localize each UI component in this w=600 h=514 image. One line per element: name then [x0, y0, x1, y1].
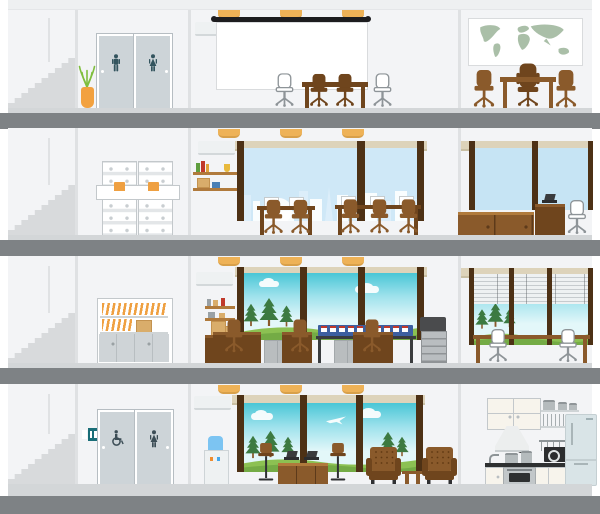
mens-restroom-door: [97, 34, 135, 112]
sign-figure: [90, 431, 92, 438]
restroom-sign-panel: [82, 430, 87, 439]
plant-pot: [81, 87, 94, 108]
tufted-armchair: [366, 447, 401, 485]
office-chair: [564, 200, 590, 235]
bar-stool: [328, 441, 348, 485]
cloud: [259, 281, 279, 287]
pine-tree: [487, 302, 504, 328]
window-frame-post: [300, 395, 307, 472]
fridge-split-line: [566, 459, 596, 461]
ceiling-light: [280, 385, 302, 394]
plant-leaves: [78, 64, 96, 89]
book: [212, 182, 220, 188]
ceiling-light: [218, 385, 240, 394]
stair-corner-wall: [48, 18, 50, 62]
woman-icon: [147, 54, 159, 72]
water-cooler: [204, 450, 229, 486]
office-chair: [261, 199, 286, 235]
orange-folder: [148, 182, 159, 191]
air-conditioner: [196, 272, 233, 286]
box: [213, 300, 218, 306]
window-frame-post: [237, 395, 244, 472]
refrigerator: [565, 414, 597, 486]
cloud: [251, 413, 273, 420]
box: [197, 178, 210, 188]
floor-slab: [0, 113, 600, 129]
copier-printer: [421, 331, 447, 363]
world-map: [473, 22, 578, 62]
stair-corner-wall: [48, 394, 50, 434]
copier-top: [420, 317, 446, 331]
bar-stool: [256, 441, 276, 485]
staircase: [8, 185, 75, 235]
office-building-cutaway: [0, 0, 600, 514]
office-chair: [338, 198, 363, 235]
tufted-armchair: [422, 447, 457, 485]
office-chair: [288, 318, 312, 354]
venetian-blinds: [469, 274, 593, 304]
desk: [535, 204, 565, 238]
cabinet-doors: [99, 334, 169, 362]
shelf-line: [100, 316, 168, 318]
wall-shelf: [193, 188, 241, 191]
jar: [207, 299, 211, 306]
window-frame-post: [469, 268, 474, 345]
wall-divider: [458, 384, 461, 484]
wall-divider: [188, 256, 191, 363]
book: [201, 161, 205, 172]
folder-row: [102, 303, 166, 315]
floor-2: [8, 128, 592, 256]
guest-chair: [272, 73, 297, 108]
guest-chair: [470, 70, 498, 108]
ceiling-light: [218, 257, 240, 266]
wall-divider: [75, 10, 78, 108]
side-table: [402, 471, 423, 474]
wall-divider: [188, 384, 191, 484]
window-frame-post: [356, 395, 363, 472]
laptop: [284, 457, 299, 460]
roof: [8, 0, 592, 10]
upper-cabinets: [487, 398, 541, 430]
jar: [208, 312, 215, 318]
window-frame-post: [588, 268, 593, 345]
office-chair: [288, 199, 313, 235]
white-chair: [485, 329, 511, 363]
office-chair: [367, 198, 392, 235]
ceiling-light: [342, 385, 364, 394]
floor-slab: [0, 240, 600, 256]
office-chair: [222, 318, 246, 354]
office-chair: [396, 198, 421, 235]
storage-cabinet: [97, 298, 173, 365]
wheelchair-icon: [110, 430, 124, 446]
accessible-restroom-door: [98, 410, 136, 488]
wall-divider: [458, 10, 461, 108]
floor-surface: [8, 484, 592, 496]
staircase: [8, 58, 75, 108]
open-drawer: [96, 185, 180, 200]
guest-chair: [552, 70, 580, 108]
book: [221, 298, 225, 306]
airplane: [325, 415, 347, 425]
wall-divider: [188, 10, 191, 108]
wall-divider: [188, 128, 191, 235]
office-chair: [360, 318, 384, 354]
wall-divider: [75, 384, 78, 484]
world-map-board: [468, 18, 583, 66]
hot-tap: [210, 457, 213, 461]
task-chair: [307, 73, 331, 108]
window-frame-post: [237, 141, 244, 221]
guest-chair: [370, 73, 395, 108]
womens-restroom-door: [134, 34, 172, 112]
trophy: [224, 164, 230, 172]
window-frame-post: [469, 141, 475, 210]
wall-divider: [75, 256, 78, 363]
table-leg: [410, 338, 413, 363]
book: [206, 164, 209, 172]
cold-tap: [217, 457, 220, 461]
wall-shelf: [205, 306, 235, 309]
womens-restroom-door: [135, 410, 173, 488]
sign-figure: [94, 431, 97, 438]
shelf-board: [541, 410, 579, 412]
folder-row: [102, 319, 132, 331]
fridge-handle: [571, 423, 573, 445]
laptop: [542, 200, 557, 203]
window-frame-post: [532, 141, 538, 210]
ceiling-light: [280, 257, 302, 266]
book: [196, 163, 200, 172]
executive-chair: [514, 62, 542, 108]
ceiling-light: [280, 129, 302, 138]
floor-slab: [0, 368, 600, 384]
task-chair: [333, 73, 357, 108]
wall-divider: [75, 128, 78, 235]
woman-icon: [148, 430, 160, 448]
oven-handle: [507, 469, 532, 471]
ceiling-light: [342, 129, 364, 138]
stair-corner-wall: [48, 266, 50, 313]
floor-4: [8, 384, 592, 514]
stair-corner-wall: [48, 138, 50, 185]
staircase: [8, 434, 75, 484]
floor-slab: [0, 496, 600, 514]
air-conditioner: [198, 141, 235, 155]
floor-1: [8, 10, 592, 129]
oven-window: [509, 473, 530, 482]
executive-desk: [500, 77, 556, 82]
man-icon: [110, 54, 122, 72]
window-frame-post: [547, 268, 552, 345]
air-conditioner: [194, 396, 231, 410]
freezer-handle: [574, 463, 588, 465]
table-leg: [318, 338, 321, 363]
ceiling-light: [218, 129, 240, 138]
ceiling-light: [342, 257, 364, 266]
orange-folder: [114, 182, 125, 191]
staircase: [8, 313, 75, 363]
pine-tree: [259, 297, 279, 327]
floor-3: [8, 256, 592, 384]
white-chair: [555, 329, 581, 363]
laptop: [304, 457, 319, 460]
wall-shelf: [193, 172, 241, 175]
